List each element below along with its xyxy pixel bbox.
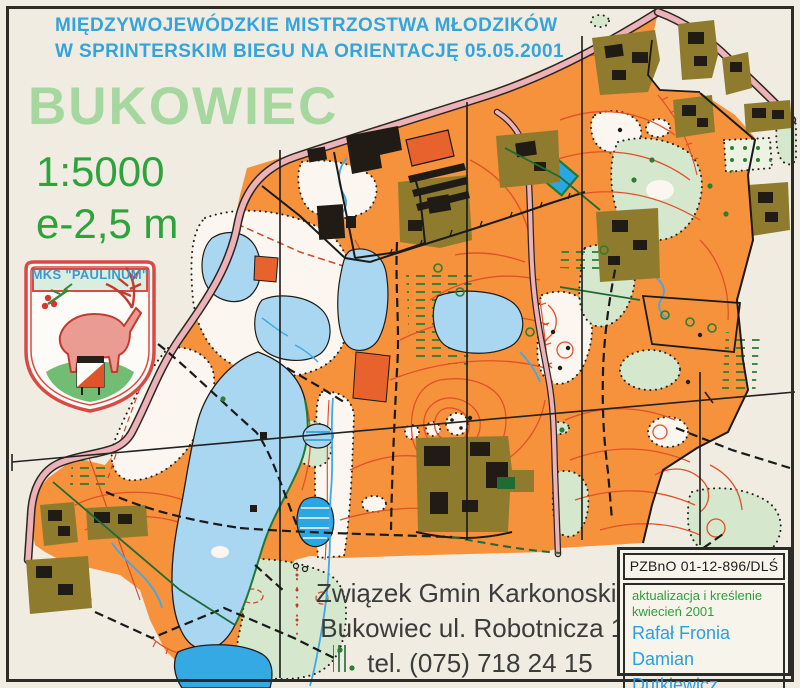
upper-pond-4 <box>433 291 522 353</box>
update-note-line1: aktualizacja i kreślenie <box>632 588 776 604</box>
lake-island <box>211 546 229 558</box>
event-title-line2: W SPRINTERSKIM BIEGU NA ORIENTACJĘ 05.05… <box>55 39 564 65</box>
author-1: Rafał Fronia <box>632 620 776 646</box>
garden-plot <box>497 477 515 489</box>
upper-pond-3 <box>338 249 388 350</box>
red-building-3 <box>353 352 390 402</box>
club-logo: MKS "PAULINUM" <box>20 256 160 418</box>
organizer-name: Związek Gmin Karkonoskich <box>300 576 660 611</box>
scanned-map-page: MIĘDZYWOJEWÓDZKIE MISTRZOSTWA MŁODZIKÓW … <box>0 0 800 688</box>
reed-pond <box>297 497 334 546</box>
club-name: MKS "PAULINUM" <box>30 267 150 282</box>
event-header: MIĘDZYWOJEWÓDZKIE MISTRZOSTWA MŁODZIKÓW … <box>55 13 564 65</box>
red-building-2 <box>254 256 278 282</box>
authors-panel: aktualizacja i kreślenie kwiecień 2001 R… <box>623 583 785 688</box>
organizer-address: Związek Gmin Karkonoskich Bukowiec ul. R… <box>300 576 660 681</box>
organizer-phone: tel. (075) 718 24 15 <box>300 646 660 681</box>
registry-number: PZBnO 01-12-896/DLŚ <box>623 553 785 580</box>
update-note-line2: kwiecień 2001 <box>632 604 776 620</box>
credits-box: PZBnO 01-12-896/DLŚ aktualizacja i kreśl… <box>617 547 791 676</box>
contour-interval: e-2,5 m <box>36 200 178 248</box>
event-title-line1: MIĘDZYWOJEWÓDZKIE MISTRZOSTWA MŁODZIKÓW <box>55 13 564 39</box>
map-title: BUKOWIEC <box>28 76 338 137</box>
organizer-street: Bukowiec ul. Robotnicza 15 <box>300 611 660 646</box>
lake-platform <box>250 505 257 512</box>
map-scale: 1:5000 <box>36 148 164 196</box>
author-2: Damian Dutkiewicz <box>632 646 776 688</box>
